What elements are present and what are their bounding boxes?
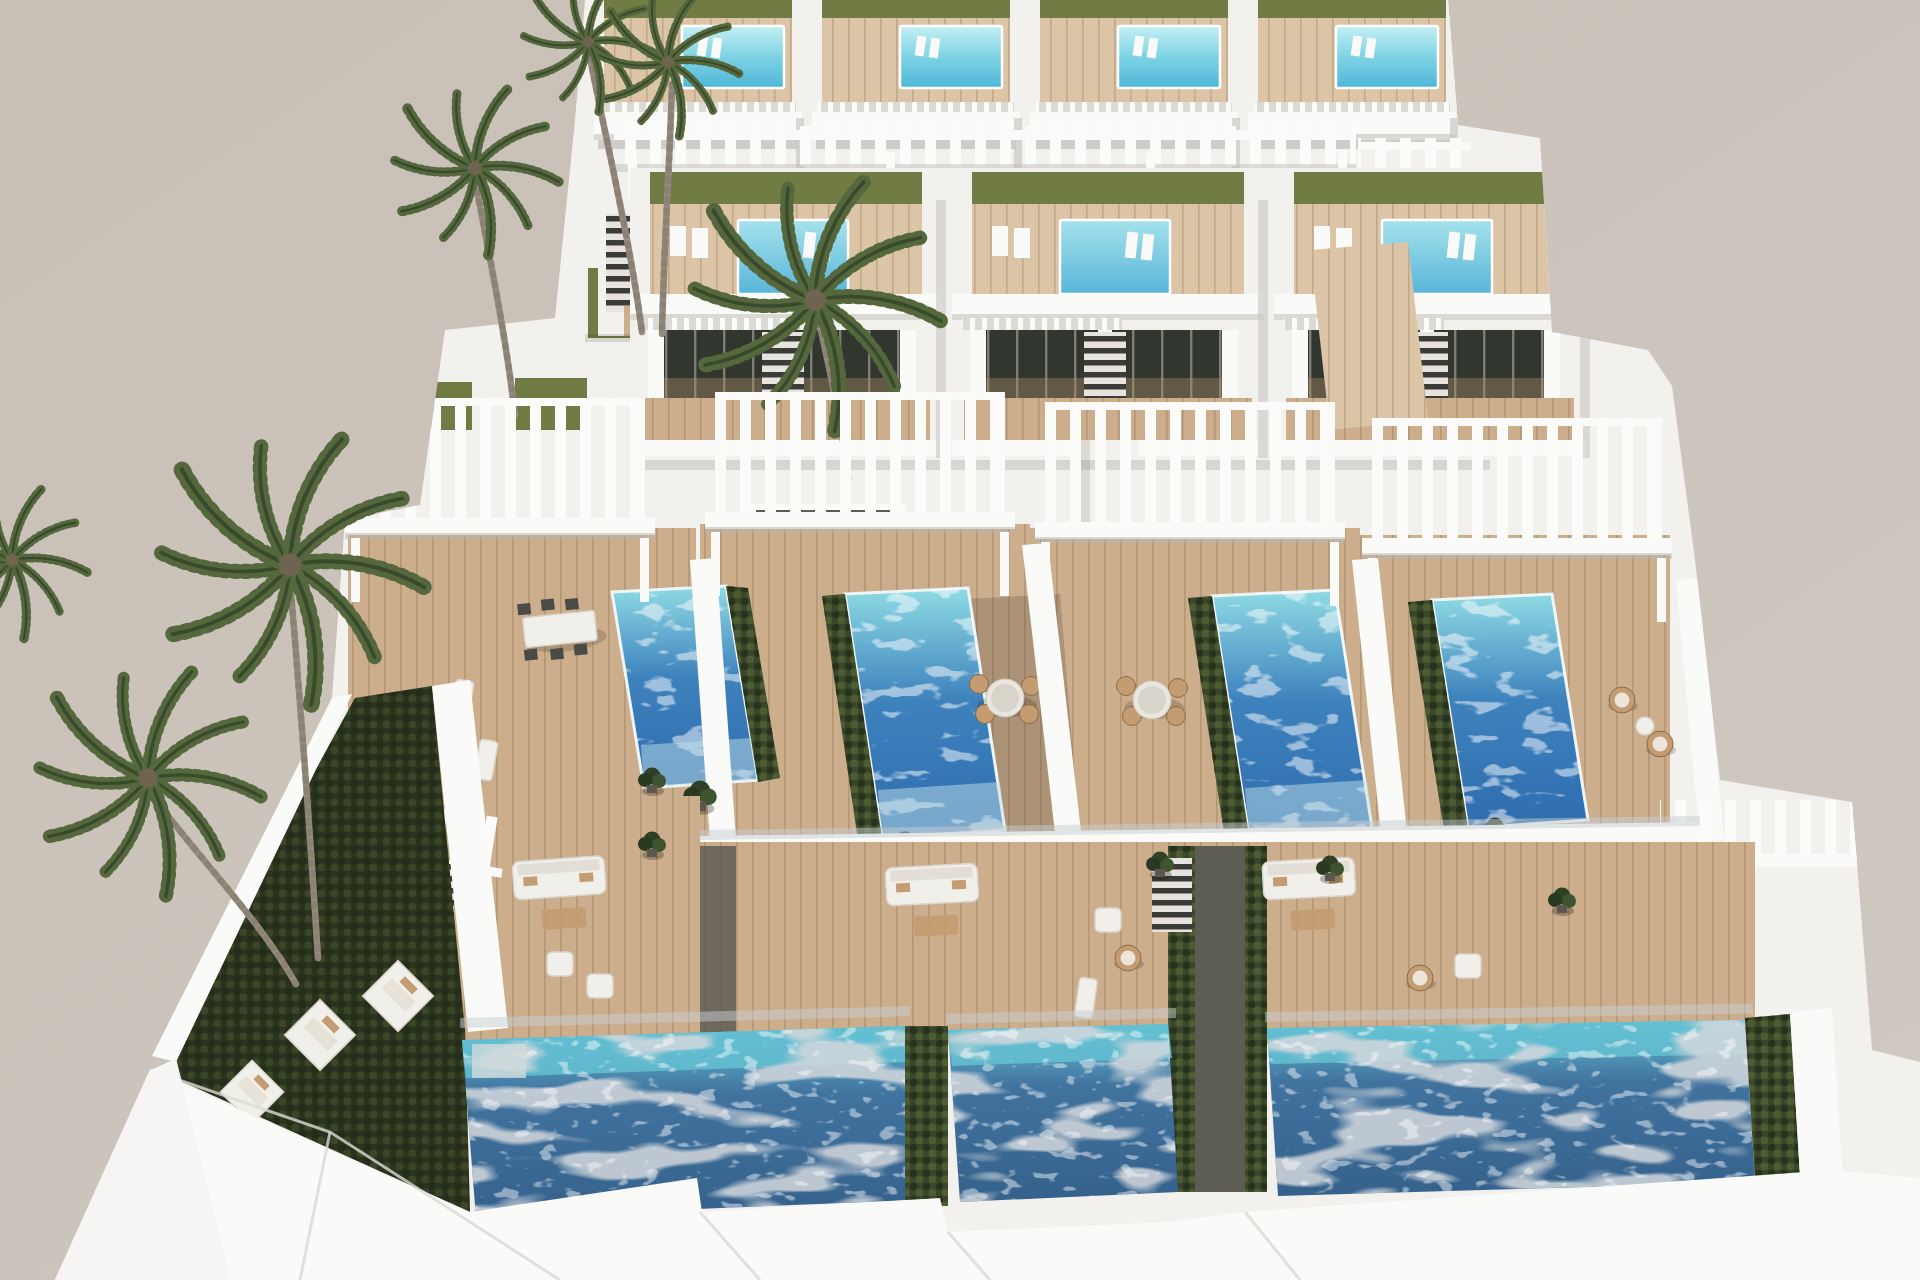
ground-pool-2 (948, 1024, 1178, 1202)
pool-ripples (1267, 1020, 1755, 1196)
hedge-texture (905, 1026, 948, 1206)
dark-walkway (700, 846, 736, 1040)
side-table (1636, 717, 1654, 735)
ground-pool-3 (1267, 1020, 1755, 1196)
pool-steps (472, 1044, 526, 1078)
pergola-beam (614, 130, 1356, 140)
armchair (547, 952, 573, 976)
architectural-render (0, 0, 1920, 1280)
pergola-beam-right (1358, 142, 1470, 150)
armchair (1095, 908, 1121, 932)
pool-ripples (948, 1024, 1178, 1202)
armchair (1455, 954, 1481, 978)
dark-walkway (1195, 846, 1245, 1192)
armchair (587, 974, 613, 998)
render-canvas (0, 0, 1920, 1280)
hedge-texture (1245, 846, 1267, 1192)
side-deck-planks (1310, 242, 1428, 430)
